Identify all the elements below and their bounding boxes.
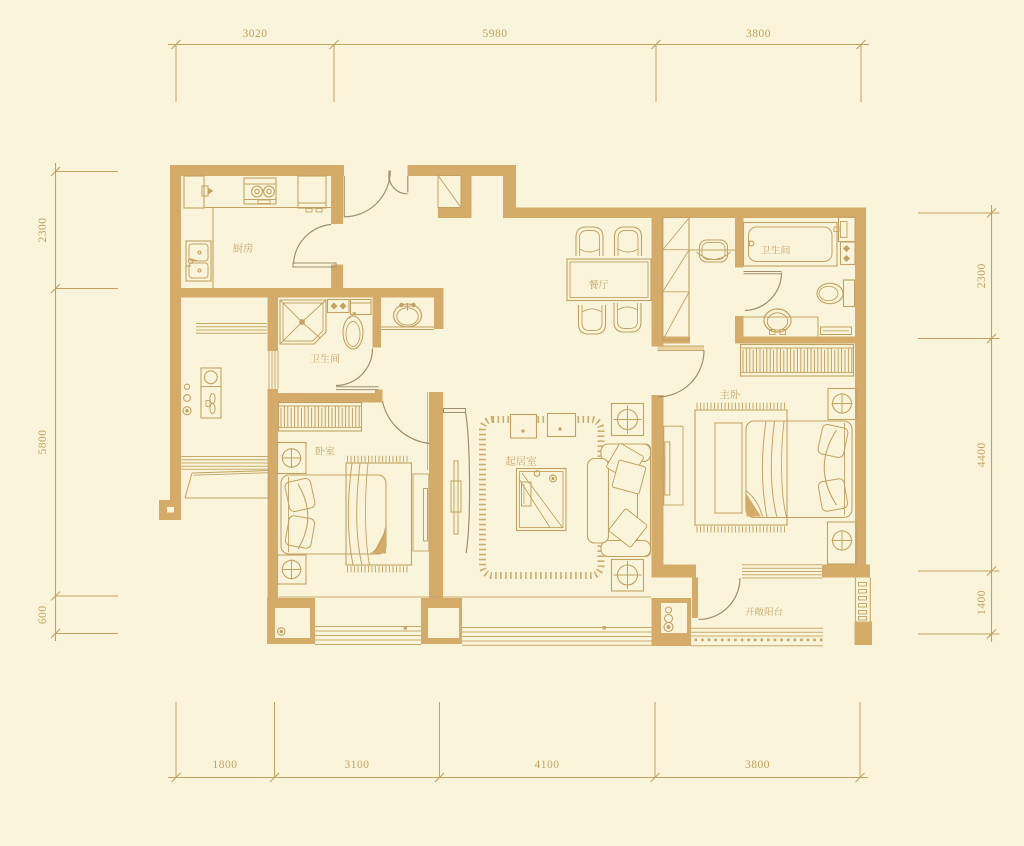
svg-text:3800: 3800 bbox=[745, 759, 770, 771]
svg-text:1800: 1800 bbox=[213, 759, 238, 771]
svg-text:4100: 4100 bbox=[535, 759, 560, 771]
svg-text:3020: 3020 bbox=[243, 28, 268, 40]
svg-text:600: 600 bbox=[37, 605, 49, 624]
svg-text:3800: 3800 bbox=[746, 28, 771, 40]
svg-text:1400: 1400 bbox=[976, 590, 988, 615]
svg-text:5800: 5800 bbox=[37, 430, 49, 455]
svg-text:2300: 2300 bbox=[976, 263, 988, 288]
svg-text:5980: 5980 bbox=[483, 28, 508, 40]
svg-text:2300: 2300 bbox=[37, 218, 49, 243]
svg-text:4400: 4400 bbox=[976, 442, 988, 467]
svg-text:3100: 3100 bbox=[345, 759, 370, 771]
